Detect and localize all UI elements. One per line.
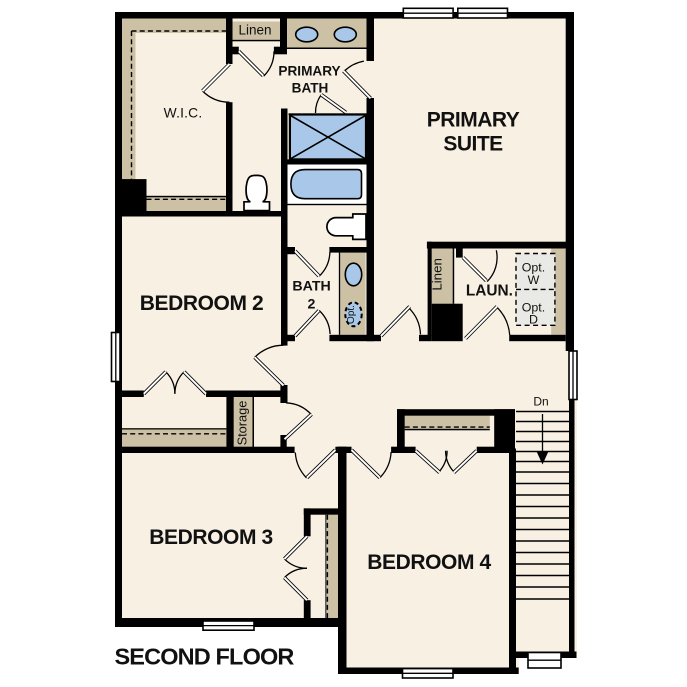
svg-text:2: 2	[307, 297, 315, 313]
svg-text:W.I.C.: W.I.C.	[164, 106, 203, 121]
svg-text:BATH: BATH	[292, 279, 330, 295]
svg-text:BEDROOM 3: BEDROOM 3	[149, 526, 273, 549]
svg-text:BATH: BATH	[292, 81, 329, 96]
svg-text:Opt.: Opt.	[346, 305, 357, 324]
svg-text:PRIMARY: PRIMARY	[278, 63, 340, 78]
svg-text:Dn: Dn	[533, 395, 548, 409]
svg-text:Linen: Linen	[238, 22, 271, 37]
svg-text:BEDROOM 4: BEDROOM 4	[367, 551, 491, 574]
svg-text:PRIMARY: PRIMARY	[427, 109, 520, 132]
svg-text:W: W	[528, 273, 540, 287]
svg-text:Storage: Storage	[235, 401, 250, 446]
svg-text:Linen: Linen	[429, 258, 444, 291]
svg-text:D: D	[529, 313, 538, 327]
svg-text:SECOND FLOOR: SECOND FLOOR	[114, 644, 294, 670]
svg-text:BEDROOM 2: BEDROOM 2	[140, 292, 264, 315]
svg-text:LAUN.: LAUN.	[466, 283, 513, 300]
svg-text:SUITE: SUITE	[443, 133, 503, 156]
